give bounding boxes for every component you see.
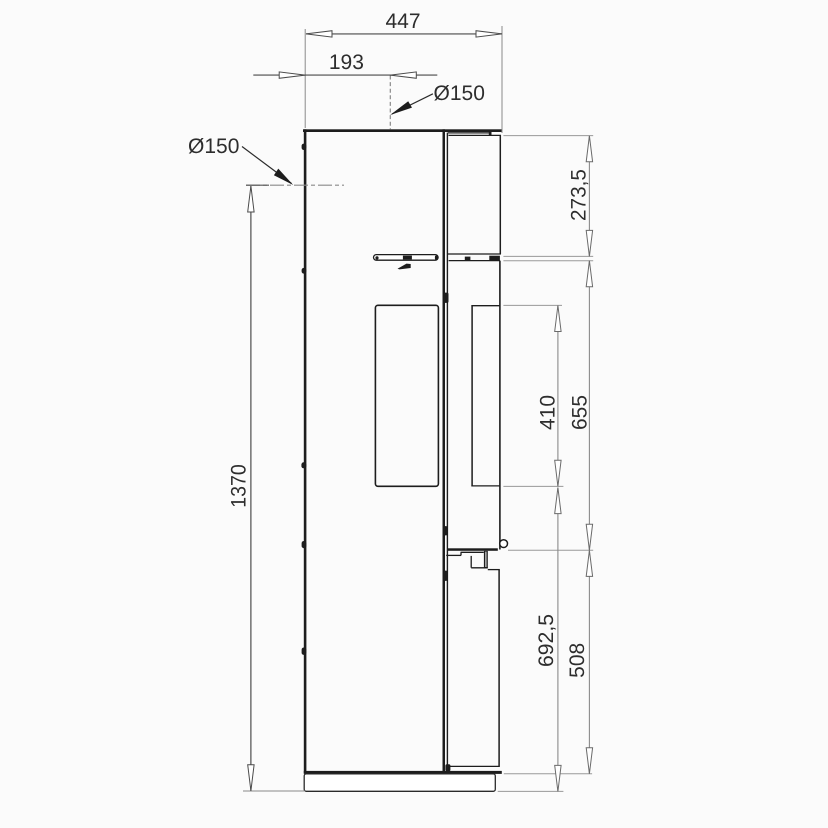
svg-text:273,5: 273,5 (568, 169, 591, 221)
svg-text:193: 193 (329, 51, 364, 74)
svg-text:Ø150: Ø150 (434, 82, 485, 105)
svg-text:410: 410 (537, 395, 560, 430)
svg-text:655: 655 (569, 395, 592, 430)
svg-text:1370: 1370 (228, 464, 251, 508)
svg-text:508: 508 (566, 643, 589, 678)
svg-text:447: 447 (385, 10, 420, 33)
svg-text:692,5: 692,5 (535, 614, 558, 667)
svg-text:Ø150: Ø150 (188, 135, 239, 158)
